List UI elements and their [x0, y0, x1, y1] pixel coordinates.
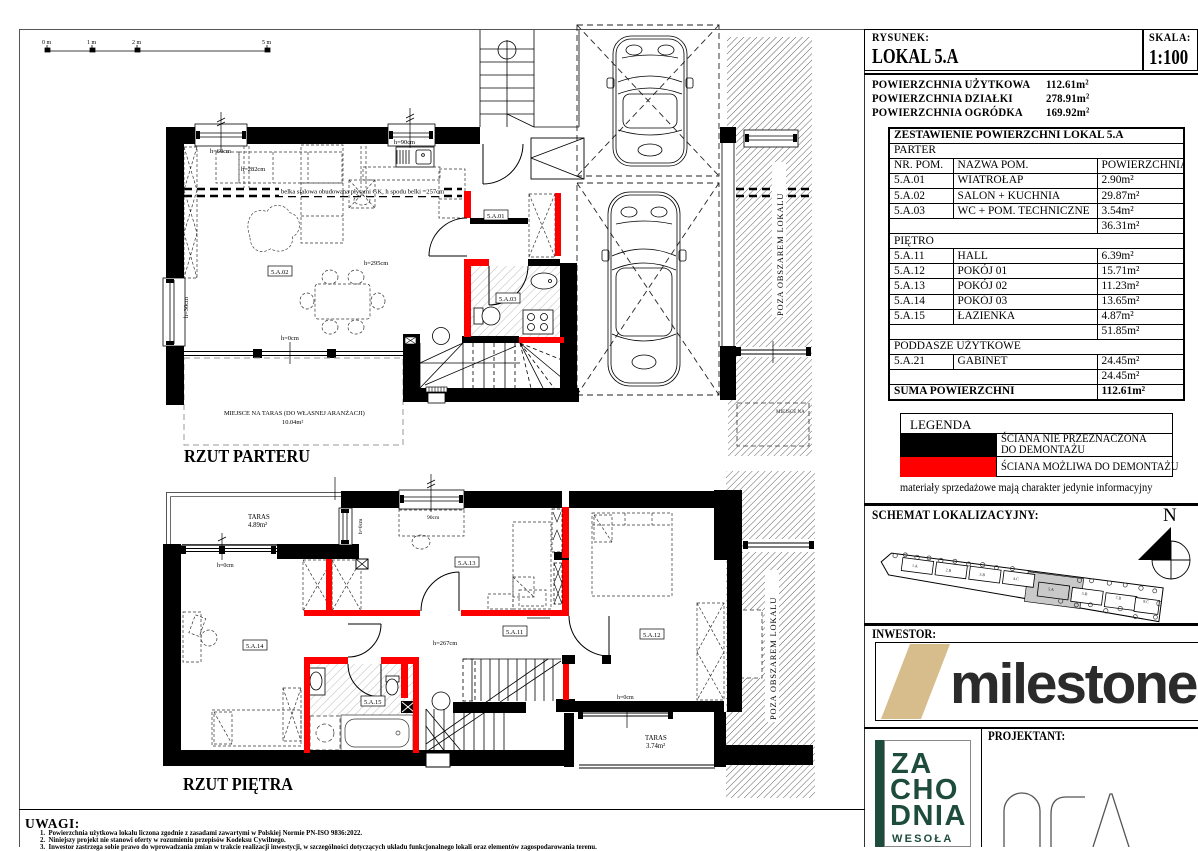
- svg-text:2 m: 2 m: [132, 40, 142, 46]
- svg-text:h=282cm: h=282cm: [241, 166, 265, 173]
- svg-text:5.A.03: 5.A.03: [499, 296, 516, 303]
- svg-text:4.89m²: 4.89m²: [248, 522, 267, 529]
- svg-text:4.C: 4.C: [1013, 576, 1020, 582]
- svg-text:5.A.11: 5.A.11: [506, 629, 523, 636]
- svg-text:3.B: 3.B: [979, 571, 986, 577]
- svg-text:0 m: 0 m: [42, 40, 52, 46]
- svg-text:RZUT PARTERU: RZUT PARTERU: [184, 446, 310, 466]
- svg-text:1 m: 1 m: [87, 40, 97, 46]
- svg-text:h=0cm: h=0cm: [281, 335, 299, 342]
- svg-text:1.A: 1.A: [912, 563, 919, 569]
- svg-text:5 m: 5 m: [262, 40, 272, 46]
- svg-text:90cm: 90cm: [427, 515, 440, 521]
- svg-text:h=90cm: h=90cm: [394, 139, 415, 146]
- svg-text:h=295cm: h=295cm: [364, 260, 388, 267]
- svg-text:RZUT PIĘTRA: RZUT PIĘTRA: [183, 774, 293, 794]
- svg-text:5.A: 5.A: [1048, 586, 1055, 592]
- svg-text:2.B: 2.B: [945, 567, 952, 573]
- svg-text:h=267cm: h=267cm: [433, 640, 457, 647]
- svg-text:TARAS: TARAS: [645, 735, 667, 742]
- svg-text:8.C: 8.C: [1143, 599, 1150, 605]
- svg-text:belka stalowa obudowana płytam: belka stalowa obudowana płytami GK, h sp…: [281, 189, 445, 196]
- svg-text:h=0cm: h=0cm: [358, 518, 364, 534]
- svg-text:5.B: 5.B: [1082, 591, 1089, 597]
- svg-text:h=30cm: h=30cm: [183, 297, 190, 318]
- svg-text:3.74m²: 3.74m²: [646, 743, 665, 750]
- svg-text:h=60cm: h=60cm: [210, 148, 231, 155]
- svg-text:h=0cm: h=0cm: [617, 695, 634, 701]
- svg-text:POZA OBSZAREM LOKALU: POZA OBSZAREM LOKALU: [768, 597, 778, 720]
- svg-text:POZA OBSZAREM LOKALU: POZA OBSZAREM LOKALU: [775, 193, 785, 316]
- svg-text:5.A.14: 5.A.14: [246, 643, 264, 650]
- svg-text:TARAS: TARAS: [248, 514, 270, 521]
- svg-text:5.A.15: 5.A.15: [364, 699, 381, 706]
- svg-text:5.A.12: 5.A.12: [643, 632, 660, 639]
- svg-text:7.B: 7.B: [1115, 595, 1122, 601]
- svg-text:5.A.01: 5.A.01: [487, 213, 504, 220]
- svg-text:h=0cm: h=0cm: [217, 563, 234, 569]
- svg-text:5.A.02: 5.A.02: [271, 269, 288, 276]
- svg-text:MIEJSCE NA: MIEJSCE NA: [776, 410, 805, 415]
- svg-text:MIEJSCE NA TARAS (DO WŁASNEJ A: MIEJSCE NA TARAS (DO WŁASNEJ ARANŻACJI): [224, 410, 365, 417]
- svg-text:5.A.13: 5.A.13: [458, 560, 475, 567]
- svg-text:10.04m²: 10.04m²: [282, 419, 303, 426]
